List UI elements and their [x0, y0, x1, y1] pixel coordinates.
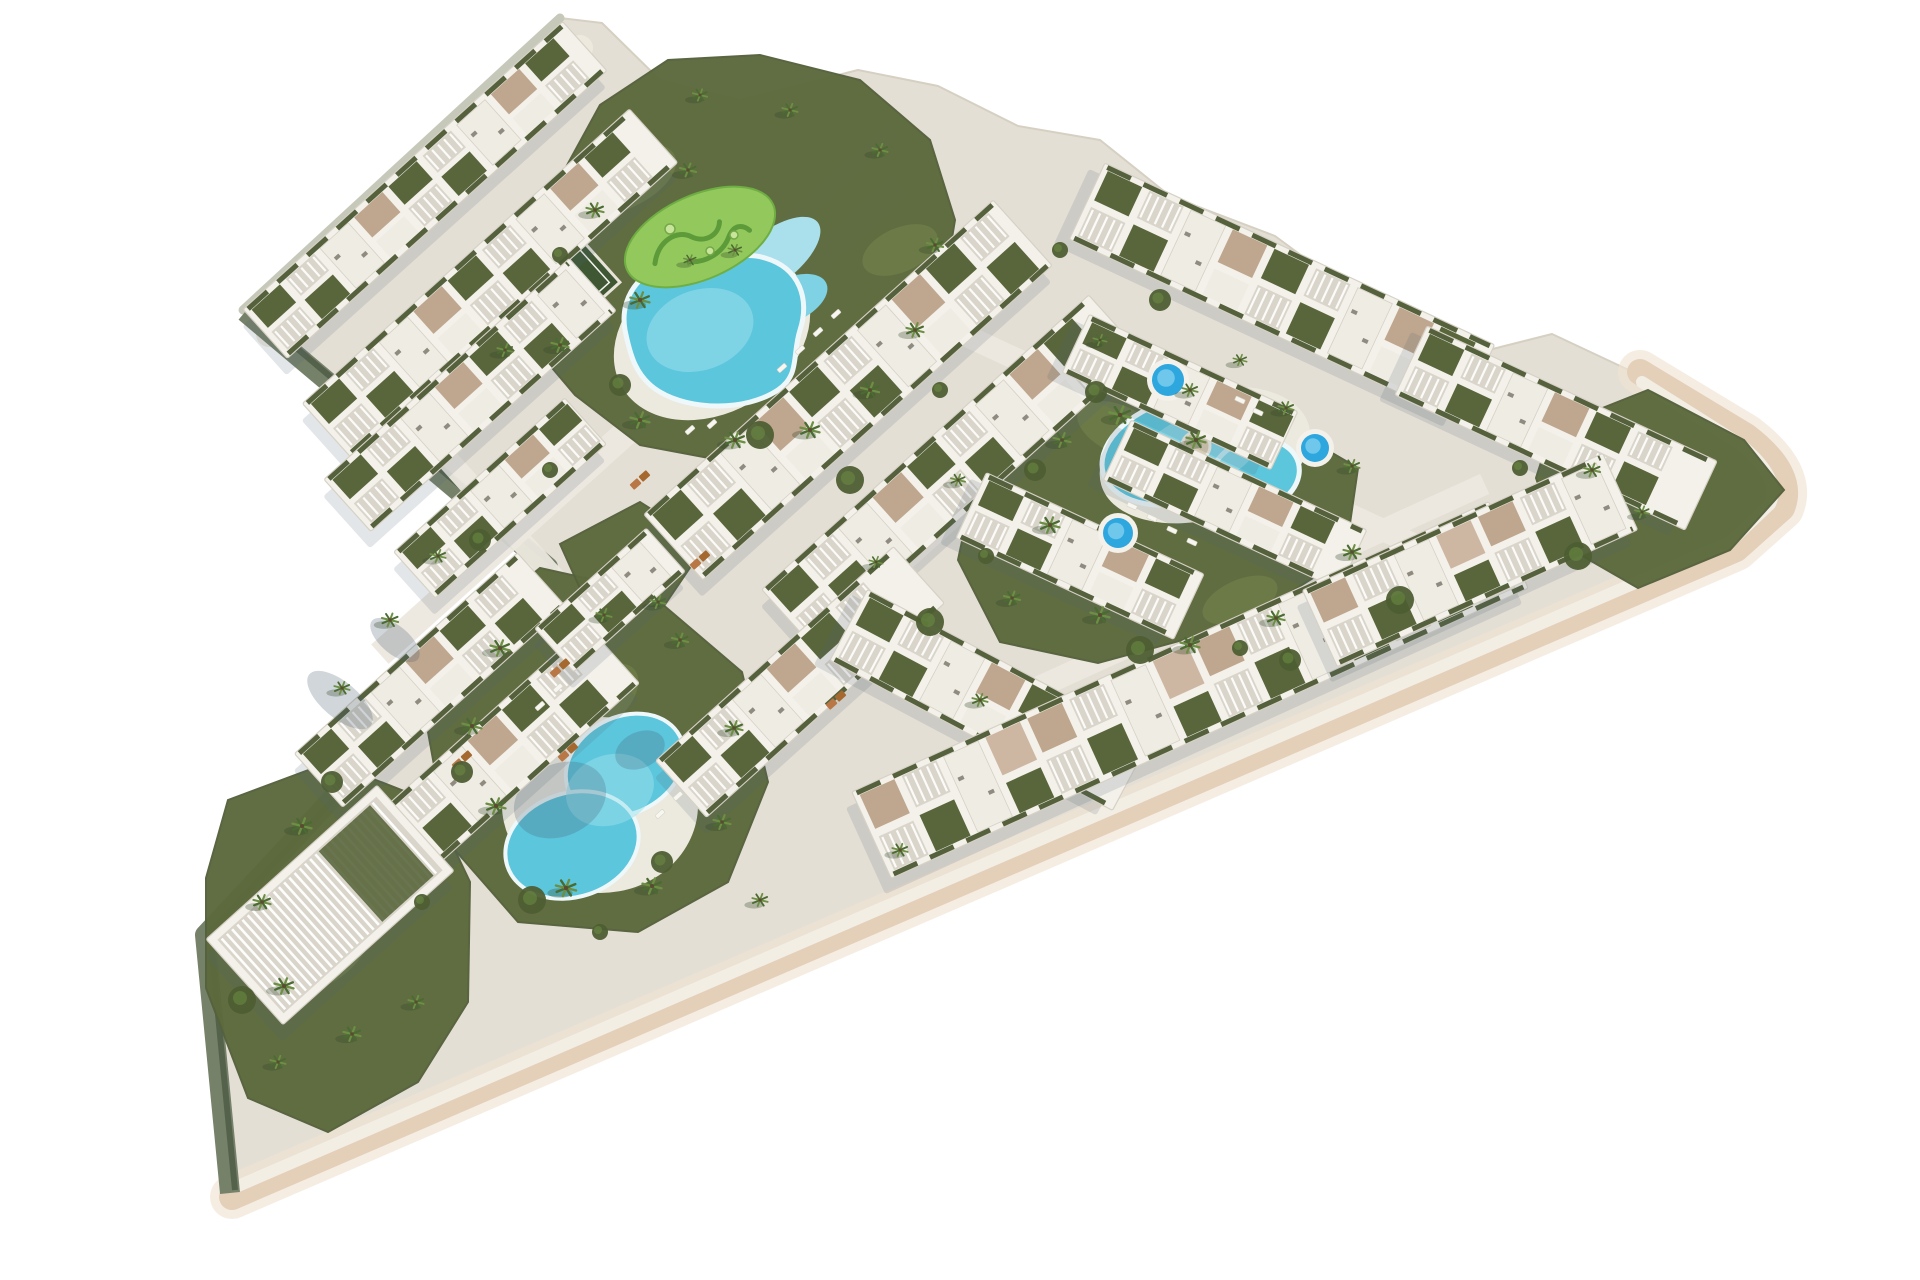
spa-highlight	[1157, 369, 1175, 387]
palm-crown	[1098, 613, 1102, 617]
bush-highlight	[325, 775, 336, 786]
bush-highlight	[554, 249, 562, 257]
palm-crown	[878, 148, 881, 151]
palm-crown	[650, 884, 654, 888]
spa-pool	[1098, 513, 1138, 553]
palm-crown	[808, 428, 812, 432]
palm-crown	[978, 698, 981, 701]
palm-crown	[898, 848, 901, 851]
palm-crown	[1010, 596, 1013, 599]
bush-highlight	[1054, 244, 1062, 252]
palm-crown	[558, 343, 562, 347]
render-canvas	[0, 0, 1920, 1280]
bush-highlight	[655, 855, 666, 866]
palm-crown	[1118, 413, 1122, 417]
palm-crown	[1188, 388, 1191, 391]
palm-crown	[282, 984, 286, 988]
palm-crown	[470, 724, 474, 728]
palm-crown	[602, 613, 605, 616]
palm-crown	[788, 108, 791, 111]
palm-crown	[1350, 464, 1353, 467]
bush-highlight	[841, 471, 855, 485]
palm-crown	[732, 726, 736, 730]
bush-highlight	[1089, 385, 1100, 396]
palm-crown	[498, 646, 502, 650]
bush-highlight	[613, 378, 624, 389]
bush-highlight	[416, 896, 424, 904]
palm-crown	[276, 1060, 279, 1063]
palm-crown	[1641, 511, 1644, 514]
palm-crown	[1194, 438, 1198, 442]
palm-crown	[414, 1000, 417, 1003]
bush-highlight	[455, 765, 466, 776]
palm-crown	[720, 820, 724, 824]
palm-crown	[260, 900, 264, 904]
palm-crown	[388, 618, 391, 621]
bush-highlight	[1569, 547, 1583, 561]
palm-crown	[340, 686, 343, 689]
palm-crown	[1060, 438, 1064, 442]
palm-crown	[494, 804, 498, 808]
palm-crown	[957, 479, 960, 482]
palm-crown	[1188, 643, 1192, 647]
palm-crown	[503, 348, 506, 351]
palm-crown	[1590, 468, 1593, 471]
palm-crown	[933, 243, 936, 246]
spa-highlight	[1305, 438, 1320, 453]
spa-highlight	[1108, 523, 1125, 540]
spa-pool	[1296, 429, 1334, 467]
bush-highlight	[980, 550, 988, 558]
bush-highlight	[523, 891, 537, 905]
palm-crown	[733, 438, 737, 442]
palm-crown	[1350, 550, 1354, 554]
palm-crown	[913, 328, 917, 332]
palm-crown	[638, 298, 642, 302]
palm-crown	[436, 554, 439, 557]
bush-highlight	[1514, 462, 1522, 470]
minigolf-green	[730, 231, 738, 239]
palm-crown	[656, 600, 659, 603]
bush-highlight	[1153, 293, 1164, 304]
palm-crown	[734, 249, 737, 252]
palm-crown	[593, 208, 597, 212]
palm-crown	[1274, 616, 1278, 620]
palm-crown	[699, 94, 702, 97]
bush-highlight	[921, 613, 935, 627]
bush-highlight	[233, 991, 247, 1005]
bush-highlight	[934, 384, 942, 392]
bush-highlight	[1131, 641, 1145, 655]
palm-crown	[638, 418, 642, 422]
palm-crown	[564, 886, 568, 890]
minigolf-green	[665, 224, 675, 234]
bush-highlight	[1234, 642, 1242, 650]
palm-crown	[678, 638, 681, 641]
palm-crown	[758, 898, 761, 901]
palm-crown	[1048, 523, 1052, 527]
bush-highlight	[594, 926, 602, 934]
palm-crown	[1099, 339, 1102, 342]
bush-highlight	[544, 464, 552, 472]
palm-crown	[1284, 406, 1287, 409]
minigolf-green	[706, 247, 714, 255]
bush-highlight	[1391, 591, 1405, 605]
palm-crown	[689, 259, 692, 262]
palm-crown	[686, 168, 689, 171]
palm-crown	[300, 824, 304, 828]
bush-highlight	[1028, 463, 1039, 474]
bush-highlight	[751, 426, 765, 440]
palm-crown	[875, 561, 878, 564]
palm-crown	[868, 388, 872, 392]
architectural-site-plan-render	[0, 0, 1920, 1280]
palm-crown	[1239, 359, 1242, 362]
bush-highlight	[473, 533, 484, 544]
bush-highlight	[1283, 653, 1294, 664]
palm-crown	[350, 1032, 354, 1036]
